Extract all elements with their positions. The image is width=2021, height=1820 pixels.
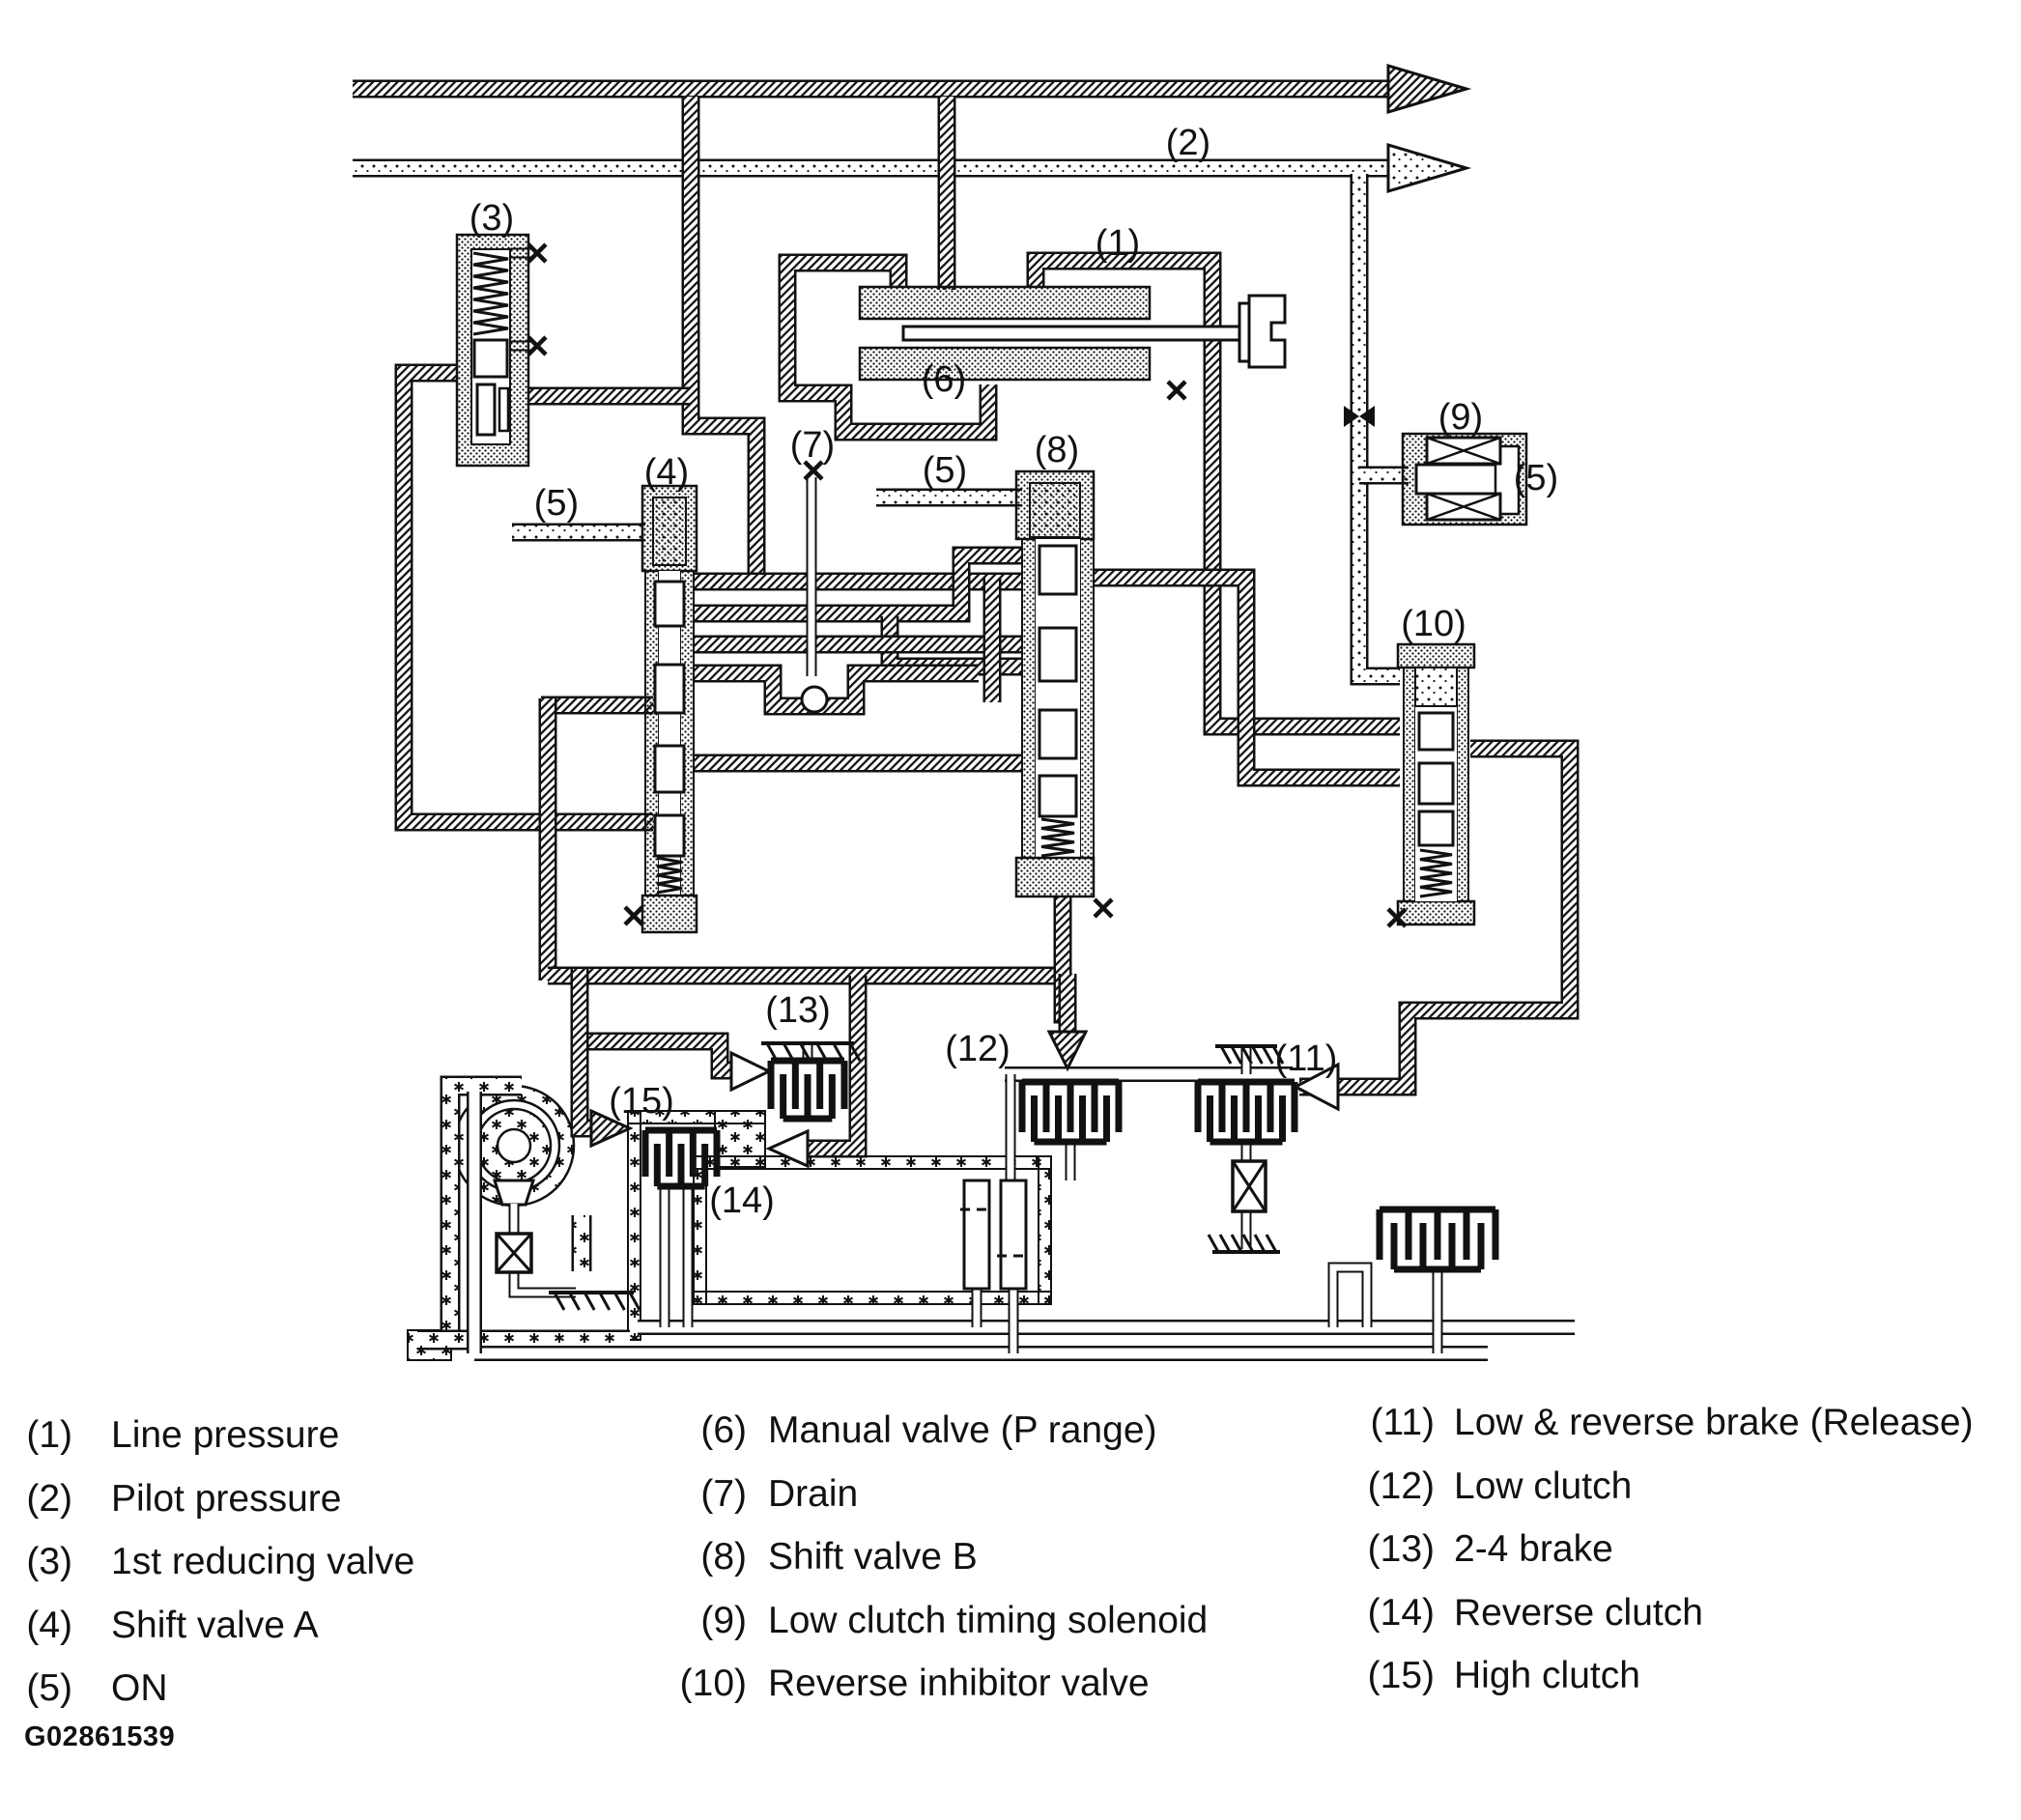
shift-a-land-1	[655, 582, 684, 626]
callout-6: (6)	[922, 359, 966, 400]
callout-11: (11)	[1275, 1038, 1338, 1079]
x-drain-mark-5	[625, 907, 642, 924]
reducing-valve-plug	[477, 384, 495, 435]
inhibitor-top-flange	[1398, 644, 1474, 668]
shuttle-ball	[802, 687, 827, 712]
pump-assembly	[408, 1086, 574, 1360]
callout-15: (15)	[609, 1081, 674, 1122]
callout-14: (14)	[709, 1180, 775, 1221]
check-valves	[497, 1161, 1266, 1272]
shift-a-land-4	[655, 815, 684, 856]
low-clutch-comb-b	[1198, 1082, 1295, 1142]
coil-upper	[1427, 438, 1500, 464]
inhibitor-land-3	[1419, 811, 1453, 845]
shift-b-land-3	[1039, 710, 1076, 758]
pipe-piston-u-stub	[1333, 1267, 1367, 1327]
reducing-valve-pin	[499, 388, 508, 431]
pipe-ball-trap-run	[695, 673, 979, 706]
callout-4: (4)	[644, 452, 689, 493]
callout-1: (1)	[1096, 223, 1140, 264]
inhibitor-left-wall	[1404, 668, 1415, 901]
shift-b-pilot-chamber	[1030, 483, 1080, 537]
low-clutch-comb-a	[1022, 1082, 1119, 1142]
rear-comb	[1380, 1209, 1495, 1269]
shift-a-land-2	[655, 665, 684, 713]
two-four-brake-arrow	[731, 1053, 769, 1090]
callout-5-shift-b: (5)	[923, 450, 967, 491]
inhibitor-bottom-flange	[1398, 901, 1474, 924]
shift-valve-b	[1016, 471, 1094, 896]
manual-valve-lower-plate	[860, 348, 1150, 380]
callout-12: (12)	[945, 1029, 1010, 1069]
inhibitor-land-2	[1419, 763, 1453, 804]
shift-b-land-4	[1039, 776, 1076, 816]
callout-13: (13)	[765, 990, 831, 1031]
reverse-clutch-right-wall	[1039, 1156, 1051, 1304]
pump-funnel	[495, 1180, 533, 1205]
piston-1	[964, 1180, 989, 1289]
low-clutch-orifice-check-valve	[1233, 1161, 1266, 1211]
reducing-valve-land	[474, 340, 507, 377]
inhibitor-pilot-chamber	[1415, 668, 1457, 706]
torus-center	[498, 1129, 530, 1162]
coil-lower	[1427, 494, 1500, 520]
hydraulic-diagram: (1)(2)(3)(4)(5)(5)(5)(6)(7)(8)(9)(10)(11…	[0, 0, 2021, 1820]
low-clutch-feed-arrow	[1049, 1032, 1086, 1068]
solenoid-plunger	[1416, 465, 1499, 494]
piston-2	[1001, 1180, 1026, 1289]
hydraulic-circuit-page: (1)(2)(3)(4)(5)(5)(5)(6)(7)(8)(9)(10)(11…	[0, 0, 2021, 1820]
callout-2: (2)	[1166, 123, 1210, 163]
shift-b-bottom-block	[1016, 858, 1094, 896]
high-clutch-comb	[645, 1130, 717, 1186]
low-clutch-piston-stack	[960, 1180, 1030, 1289]
callout-10: (10)	[1401, 604, 1466, 644]
manual-valve-spool	[903, 327, 1241, 340]
clutch-housings	[408, 1086, 1051, 1360]
pipe-brake-24-feed	[580, 1041, 731, 1070]
reverse-clutch-top-wall	[694, 1156, 1051, 1169]
callout-5-shift-a: (5)	[534, 483, 579, 524]
pipe-pilot-solenoid-drop	[1359, 174, 1400, 676]
x-drain-mark-6	[1095, 899, 1112, 917]
manual-valve-upper-plate	[860, 287, 1150, 319]
x-drain-mark-4	[1168, 382, 1185, 399]
callout-7: (7)	[790, 425, 835, 466]
pump-orifice-check-valve	[497, 1234, 531, 1272]
reverse-clutch-bottom-wall	[694, 1292, 1051, 1304]
shift-b-land-1	[1039, 546, 1076, 594]
shift-b-left-wall	[1022, 539, 1036, 858]
reverse-clutch-housing	[694, 1156, 1051, 1304]
pipe-pump-check-out	[514, 1272, 576, 1293]
callout-3: (3)	[470, 198, 514, 239]
inhibitor-right-wall	[1457, 668, 1468, 901]
shift-a-bottom-block	[642, 896, 697, 932]
shift-b-land-2	[1039, 628, 1076, 681]
two-four-brake-comb	[771, 1061, 844, 1119]
inhibitor-land-1	[1419, 713, 1453, 750]
shift-a-pilot-chamber	[653, 498, 686, 565]
manual-valve-detent-head	[1249, 296, 1285, 367]
shift-b-right-wall	[1080, 539, 1094, 858]
pilot-pressure-arrow	[1388, 145, 1466, 191]
reverse-inhibitor-valve	[1398, 644, 1474, 924]
callout-5-solenoid: (5)	[1514, 458, 1558, 498]
callout-9: (9)	[1438, 397, 1483, 438]
line-pressure-arrow	[1388, 66, 1466, 112]
callout-8: (8)	[1035, 430, 1079, 470]
shift-a-land-3	[655, 746, 684, 792]
